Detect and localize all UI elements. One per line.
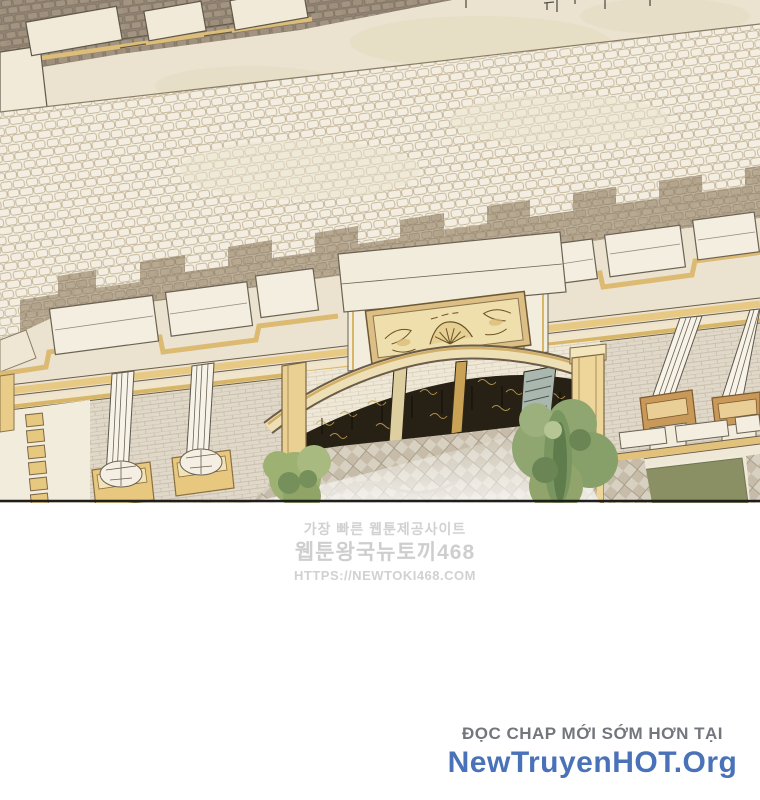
webtoon-page: 가장 빠른 웹툰제공사이트 웹툰왕국뉴토끼468 HTTPS://NEWTOKI… [0,0,760,800]
footer-notice-text: ĐỌC CHAP MỚI SỚM HƠN TẠI [420,722,760,746]
footer-notice-block: ĐỌC CHAP MỚI SỚM HƠN TẠI NewTruyenHOT.Or… [420,722,760,780]
watermark-site-url: HTTPS://NEWTOKI468.COM [240,566,530,586]
site-watermark: 가장 빠른 웹툰제공사이트 웹툰왕국뉴토끼468 HTTPS://NEWTOKI… [240,518,530,586]
footer-site-link[interactable]: NewTruyenHOT.Org [420,746,760,780]
watermark-site-name: 웹툰왕국뉴토끼468 [240,540,530,566]
palace-gate-illustration [0,0,760,503]
watermark-tagline: 가장 빠른 웹툰제공사이트 [240,518,530,540]
